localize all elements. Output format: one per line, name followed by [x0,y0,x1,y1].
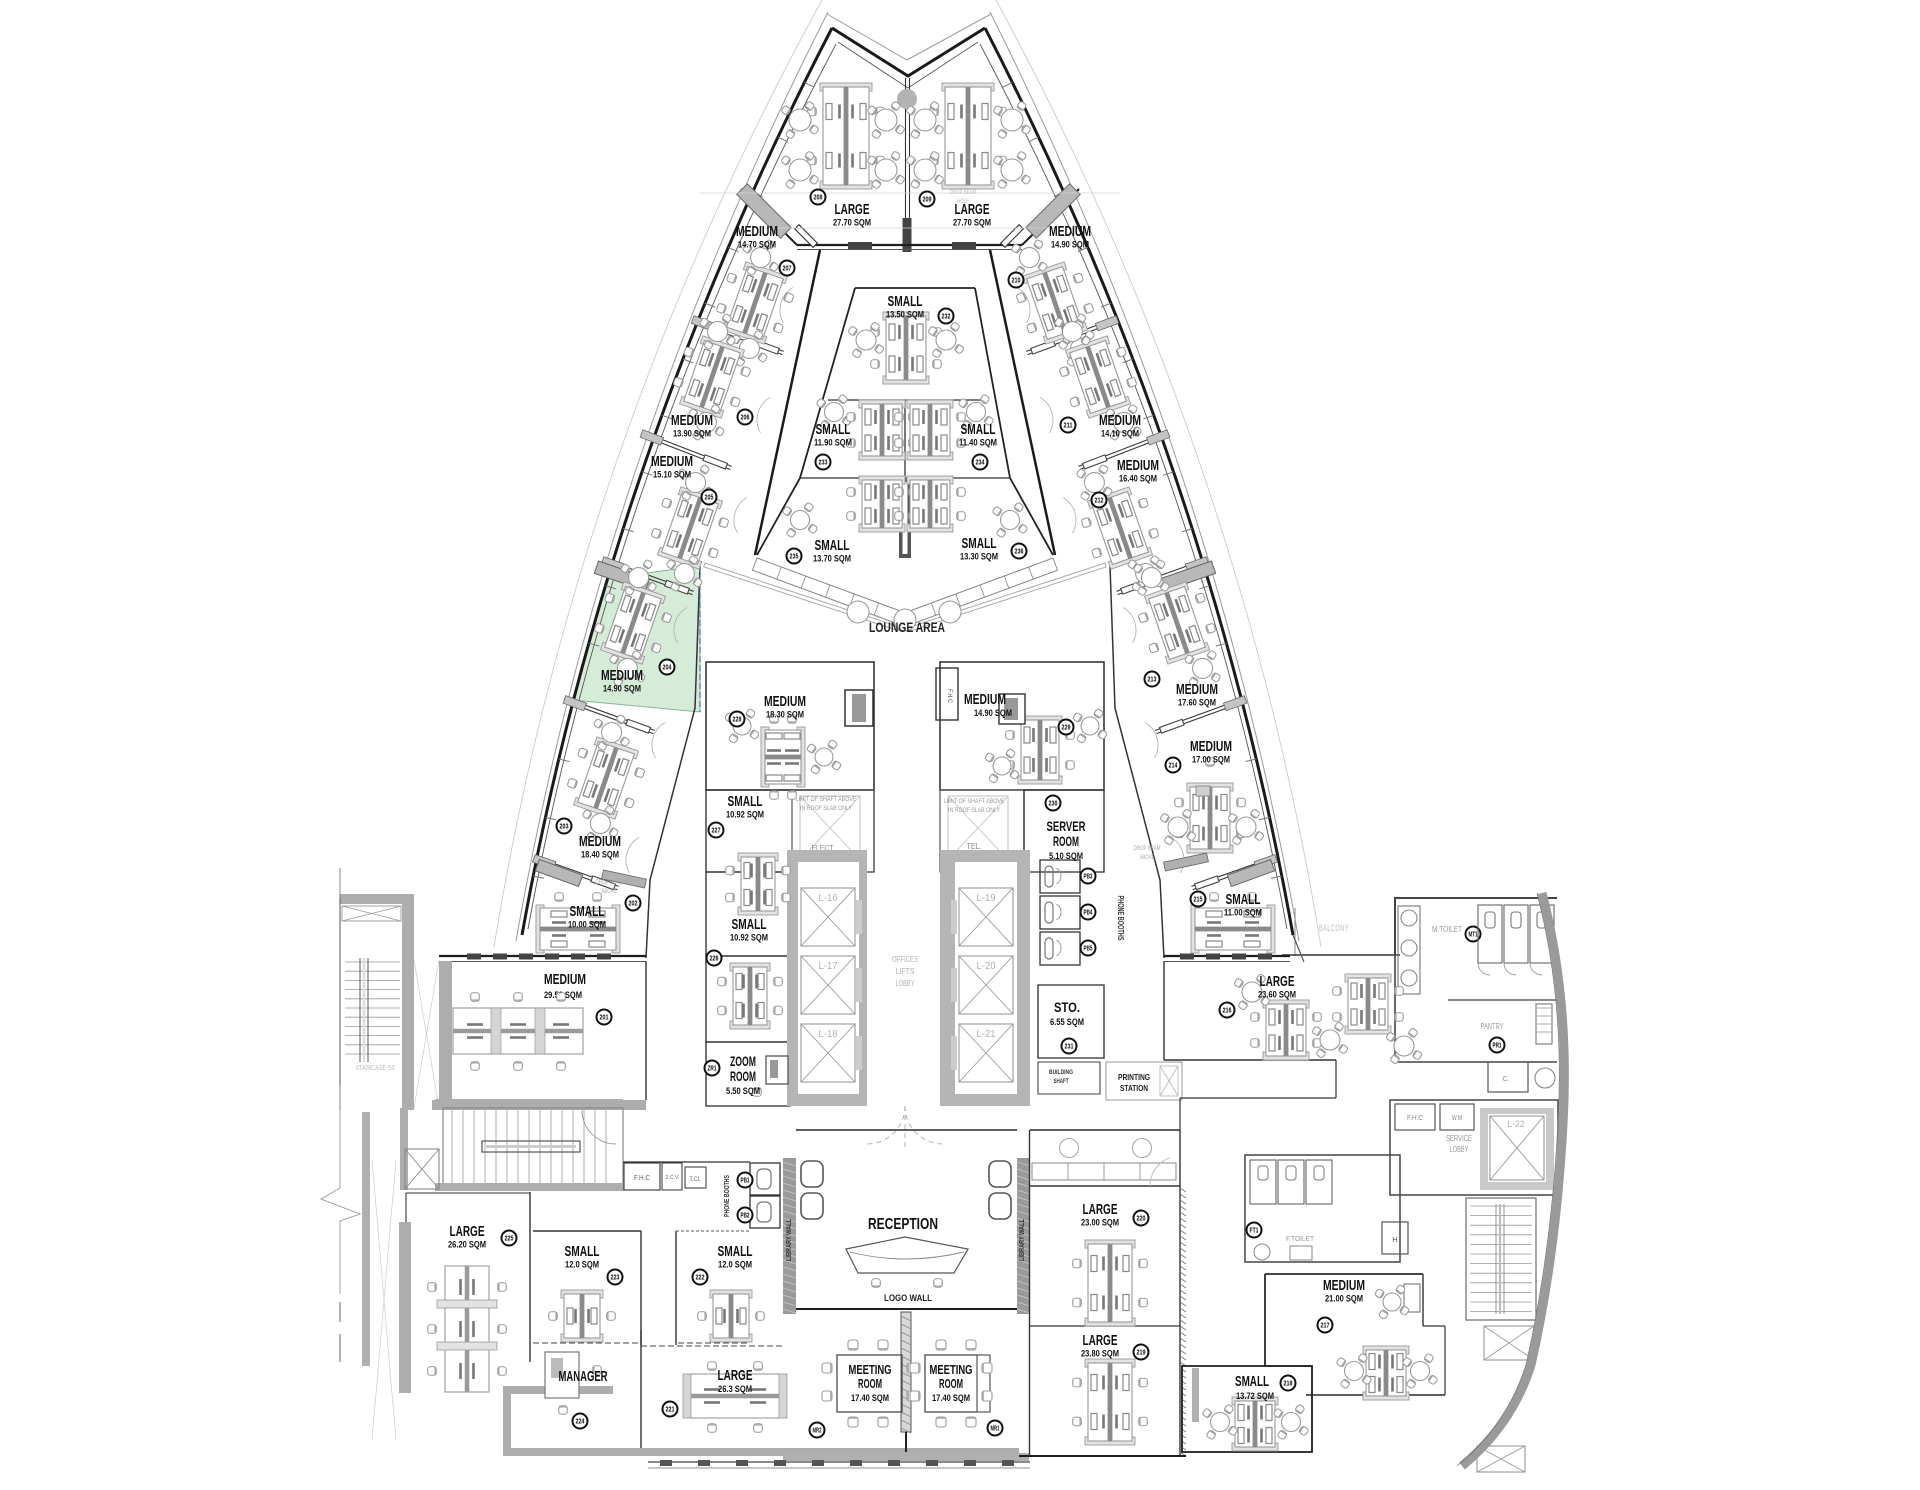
svg-text:LARGE: LARGE [718,1367,753,1384]
svg-text:219: 219 [1137,1350,1146,1357]
svg-text:18.40 SQM: 18.40 SQM [581,850,619,860]
svg-text:SMALL: SMALL [1226,891,1261,908]
svg-text:202: 202 [629,901,638,908]
svg-text:17.00 SQM: 17.00 SQM [1192,755,1230,765]
svg-text:LARGE: LARGE [1083,1201,1118,1218]
svg-text:SHAFT: SHAFT [1054,1078,1069,1085]
svg-text:LARGE: LARGE [835,201,870,218]
svg-text:L-17: L-17 [819,961,838,972]
svg-text:BALCONY: BALCONY [1319,923,1349,933]
svg-text:MEETING: MEETING [930,1362,973,1377]
svg-text:L-19: L-19 [977,893,996,904]
svg-text:207: 207 [783,266,792,273]
svg-text:LARGE: LARGE [450,1223,485,1240]
svg-text:SMALL: SMALL [570,903,605,920]
svg-text:230: 230 [1049,801,1058,808]
svg-text:L-16: L-16 [819,893,838,904]
svg-text:MEDIUM: MEDIUM [1049,223,1091,240]
svg-text:ROOM: ROOM [730,1068,756,1084]
svg-text:ZR1: ZR1 [708,1066,717,1073]
svg-text:208: 208 [814,195,823,202]
svg-text:PB3: PB3 [1084,874,1093,881]
svg-text:212: 212 [1095,498,1104,505]
svg-text:LARGE: LARGE [1260,973,1295,990]
svg-text:BUILDING: BUILDING [1049,1069,1073,1076]
svg-text:T.CL: T.CL [690,1177,702,1183]
svg-text:215: 215 [1194,897,1203,904]
svg-text:11.90 SQM: 11.90 SQM [814,438,852,448]
svg-text:F.H.C: F.H.C [946,689,952,704]
svg-text:13.30 SQM: 13.30 SQM [960,552,998,562]
svg-text:SERVER: SERVER [1047,818,1086,834]
svg-text:13.90 SQM: 13.90 SQM [673,429,711,439]
svg-text:233: 233 [819,460,828,467]
svg-text:W.M: W.M [1452,1115,1462,1122]
svg-text:MEDIUM: MEDIUM [671,412,713,429]
svg-text:12.0 SQM: 12.0 SQM [565,1260,599,1270]
svg-text:203: 203 [560,824,569,831]
svg-text:SMALL: SMALL [732,916,767,933]
svg-text:14.90 SQM: 14.90 SQM [974,708,1012,718]
svg-text:MEDIUM: MEDIUM [544,971,586,988]
svg-text:SMALL: SMALL [728,793,763,810]
svg-text:LIMIT OF SHAFT ABOVE: LIMIT OF SHAFT ABOVE [796,796,858,803]
svg-text:SMALL: SMALL [888,293,923,310]
svg-text:23.00 SQM: 23.00 SQM [1081,1218,1119,1228]
svg-text:MEDIUM: MEDIUM [579,833,621,850]
svg-text:220: 220 [1137,1216,1146,1223]
svg-text:23.80 SQM: 23.80 SQM [1081,1349,1119,1359]
svg-text:IN ROOF SLAB ONLY: IN ROOF SLAB ONLY [800,805,853,812]
svg-text:SMALL: SMALL [718,1243,753,1260]
svg-text:226: 226 [710,956,719,963]
svg-text:MEETING: MEETING [849,1362,892,1377]
svg-text:26.3 SQM: 26.3 SQM [718,1384,752,1394]
svg-text:PHONE BOOTHS: PHONE BOOTHS [1116,896,1125,941]
svg-text:F.H.C: F.H.C [1407,1115,1423,1122]
svg-text:10.00 SQM: 10.00 SQM [568,920,606,930]
svg-text:6.55 SQM: 6.55 SQM [1050,1017,1084,1027]
svg-text:18.30 SQM: 18.30 SQM [766,710,804,720]
svg-text:M.TOILET: M.TOILET [1432,925,1462,934]
svg-text:14.70 SQM: 14.70 SQM [738,240,776,250]
svg-text:TEL.: TEL. [967,842,982,851]
svg-text:213: 213 [1148,677,1157,684]
svg-text:206: 206 [741,415,750,422]
svg-text:DROP BEAM: DROP BEAM [950,189,977,196]
svg-text:SMALL: SMALL [1235,1374,1269,1390]
svg-text:SMALL: SMALL [815,537,850,554]
svg-text:209: 209 [923,197,932,204]
svg-text:LARGE: LARGE [955,201,990,218]
svg-text:13.70 SQM: 13.70 SQM [813,554,851,564]
svg-text:201: 201 [600,1015,609,1022]
svg-text:SMALL: SMALL [816,421,851,438]
svg-text:ZOOM: ZOOM [730,1053,756,1069]
svg-text:PB4: PB4 [1084,910,1093,917]
svg-text:27.70 SQM: 27.70 SQM [953,218,991,228]
svg-text:STAIRCASE-S3: STAIRCASE-S3 [356,1065,395,1072]
svg-text:223: 223 [611,1275,620,1282]
svg-text:LARGE: LARGE [1083,1332,1118,1349]
svg-text:17.60 SQM: 17.60 SQM [1178,698,1216,708]
svg-text:5.10 SQM: 5.10 SQM [1049,851,1083,861]
svg-text:11.40 SQM: 11.40 SQM [959,438,997,448]
svg-text:H: H [1392,1235,1397,1244]
svg-text:PR1: PR1 [1493,1043,1502,1050]
svg-text:L-21: L-21 [977,1029,996,1040]
svg-text:225: 225 [505,1236,514,1243]
svg-text:LIMIT OF SHAFT ABOVE: LIMIT OF SHAFT ABOVE [944,798,1006,805]
svg-text:STATION: STATION [1120,1083,1148,1093]
svg-text:15.10 SQM: 15.10 SQM [653,470,691,480]
svg-text:LIBRARY WALL: LIBRARY WALL [1017,1219,1026,1261]
svg-text:216: 216 [1223,1008,1232,1015]
svg-text:MEDIUM: MEDIUM [764,693,806,710]
svg-text:SMALL: SMALL [961,421,996,438]
svg-text:MEDIUM: MEDIUM [1099,412,1141,429]
svg-text:MEDIUM: MEDIUM [651,453,693,470]
svg-text:MR2: MR2 [813,1428,822,1435]
svg-text:13.50 SQM: 13.50 SQM [886,310,924,320]
svg-text:L-22: L-22 [1508,1119,1525,1129]
svg-text:236: 236 [1015,549,1024,556]
svg-text:14.90 SQM: 14.90 SQM [603,684,641,694]
svg-text:PB1: PB1 [741,1178,750,1185]
svg-text:ROOM: ROOM [1053,833,1079,849]
svg-text:RECEPTION: RECEPTION [868,1216,938,1233]
svg-text:LOUNGE AREA: LOUNGE AREA [869,620,945,635]
svg-text:5.50 SQM: 5.50 SQM [726,1086,760,1096]
svg-text:205: 205 [705,495,714,502]
svg-text:232: 232 [942,314,951,321]
svg-text:SERVICE: SERVICE [1446,1134,1472,1143]
svg-text:F.H.C: F.H.C [634,1175,650,1182]
svg-text:PB5: PB5 [1084,946,1093,953]
svg-text:PRINTING: PRINTING [1118,1072,1150,1082]
svg-text:LIFTS: LIFTS [896,967,915,976]
svg-text:MT1: MT1 [1469,932,1478,939]
svg-text:MANAGER: MANAGER [559,1368,608,1385]
svg-text:224: 224 [576,1419,585,1426]
svg-text:14.10 SQM: 14.10 SQM [1101,429,1139,439]
svg-text:FT1: FT1 [1250,1228,1259,1235]
svg-text:MEDIUM: MEDIUM [1176,681,1218,698]
svg-text:17.40 SQM: 17.40 SQM [851,1393,889,1403]
svg-text:14.90 SQM: 14.90 SQM [1051,240,1089,250]
svg-text:MEDIUM: MEDIUM [1323,1277,1365,1294]
svg-text:210: 210 [1012,278,1021,285]
svg-text:218: 218 [1284,1381,1293,1388]
svg-text:ABOVE: ABOVE [602,888,617,895]
svg-text:204: 204 [663,665,672,672]
svg-text:234: 234 [976,460,985,467]
svg-text:STO.: STO. [1054,999,1080,1015]
svg-text:L-18: L-18 [819,1029,838,1040]
svg-text:MEDIUM: MEDIUM [736,223,778,240]
svg-text:222: 222 [696,1275,705,1282]
svg-text:LIBRARY WALL: LIBRARY WALL [784,1219,793,1261]
svg-text:OFFICES: OFFICES [892,955,918,964]
svg-text:SMALL: SMALL [962,535,997,552]
svg-text:MEDIUM: MEDIUM [601,667,643,684]
svg-text:DROP BEAM: DROP BEAM [1134,845,1161,852]
svg-text:12.0 SQM: 12.0 SQM [718,1260,752,1270]
svg-text:211: 211 [1064,423,1073,430]
svg-text:PHONE BOOTHS: PHONE BOOTHS [722,1175,731,1217]
svg-text:LOBBY: LOBBY [896,979,915,988]
svg-text:17.40 SQM: 17.40 SQM [932,1393,970,1403]
svg-text:16.40 SQM: 16.40 SQM [1119,474,1157,484]
svg-text:MR1: MR1 [991,1426,1000,1433]
svg-text:MEDIUM: MEDIUM [964,691,1006,708]
svg-text:F.TOILET: F.TOILET [1286,1234,1314,1243]
svg-text:26.20 SQM: 26.20 SQM [448,1240,486,1250]
svg-text:10.92 SQM: 10.92 SQM [726,810,764,820]
svg-text:MEDIUM: MEDIUM [1190,738,1232,755]
svg-text:235: 235 [790,554,799,561]
svg-text:214: 214 [1169,763,1178,770]
svg-text:MEDIUM: MEDIUM [1117,457,1159,474]
svg-text:ABOVE: ABOVE [1140,854,1155,861]
svg-text:221: 221 [666,1407,675,1414]
svg-text:10.92 SQM: 10.92 SQM [730,933,768,943]
svg-text:13.72 SQM: 13.72 SQM [1236,1391,1274,1401]
svg-text:SMALL: SMALL [565,1243,600,1260]
svg-text:L-20: L-20 [977,961,996,972]
svg-text:11.00 SQM: 11.00 SQM [1224,908,1262,918]
svg-text:231: 231 [1065,1044,1074,1051]
svg-text:227: 227 [712,828,721,835]
svg-text:27.70 SQM: 27.70 SQM [833,218,871,228]
svg-text:2.C.V: 2.C.V [666,1175,679,1181]
svg-text:ROOM: ROOM [858,1376,882,1391]
svg-text:LOBBY: LOBBY [1450,1145,1469,1154]
svg-text:C.: C. [1503,1076,1510,1083]
svg-text:228: 228 [733,717,742,724]
svg-text:217: 217 [1321,1323,1330,1330]
svg-text:IN ROOF SLAB ONLY: IN ROOF SLAB ONLY [948,807,1001,814]
svg-text:ROOM: ROOM [939,1376,963,1391]
svg-text:PB2: PB2 [741,1213,750,1220]
svg-text:23.60 SQM: 23.60 SQM [1258,990,1296,1000]
svg-text:229: 229 [1062,725,1071,732]
svg-text:PANTRY: PANTRY [1481,1022,1504,1031]
svg-text:21.00 SQM: 21.00 SQM [1325,1294,1363,1304]
svg-text:LOGO WALL: LOGO WALL [884,1293,932,1304]
